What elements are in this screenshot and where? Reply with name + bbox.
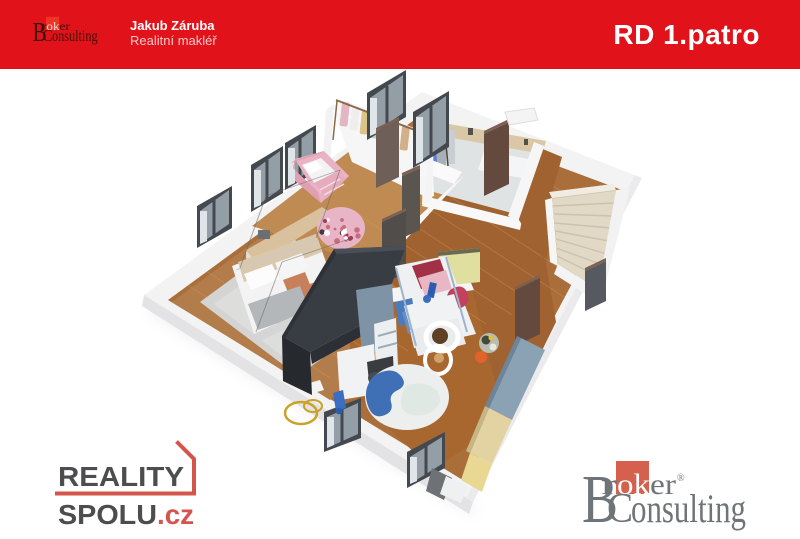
svg-text:REALITY: REALITY <box>58 461 184 492</box>
svg-text:Realitní makléř: Realitní makléř <box>130 33 217 48</box>
svg-text:onsulting: onsulting <box>631 486 746 531</box>
svg-text:C: C <box>42 26 52 45</box>
svg-text:.cz: .cz <box>157 499 194 530</box>
svg-text:RD 1.patro: RD 1.patro <box>613 19 760 50</box>
svg-text:onsulting: onsulting <box>52 28 98 45</box>
svg-text:Jakub Záruba: Jakub Záruba <box>130 18 215 33</box>
svg-text:C: C <box>607 486 633 532</box>
svg-text:®: ® <box>677 473 685 484</box>
svg-text:SPOLU: SPOLU <box>58 499 157 530</box>
